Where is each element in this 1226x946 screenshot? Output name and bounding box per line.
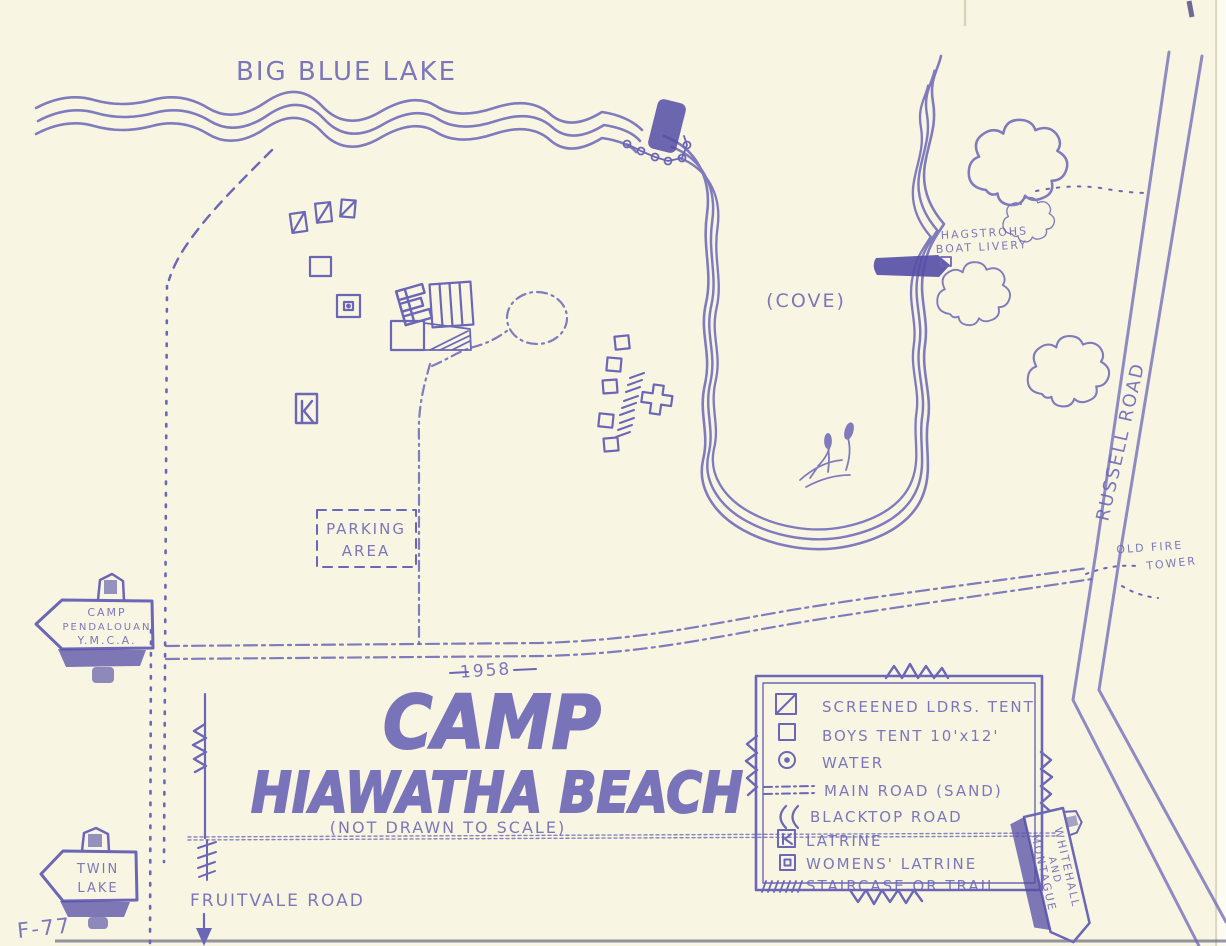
sign-post [92, 667, 114, 683]
legend-label: LATRINE [806, 832, 883, 850]
boat-livery-label: HAGSTROHS BOAT LIVERY [935, 224, 1028, 256]
sign-tower-fill [88, 834, 102, 847]
fruitvale-road-label: FRUITVALE ROAD [190, 891, 365, 911]
pendalouan-line1: CAMP [87, 606, 126, 619]
title-line2: HIAWATHA BEACH [251, 761, 743, 826]
title-line1: CAMP [383, 680, 601, 766]
cove-label: (COVE) [766, 290, 846, 312]
legend-label: WOMENS' LATRINE [806, 855, 977, 873]
sign-base [60, 901, 130, 917]
corner-ink-mark [1189, 1, 1192, 17]
title-note: (NOT DRAWN TO SCALE) [330, 818, 566, 837]
legend-label: STAIRCASE OR TRAIL [806, 877, 997, 895]
legend-label: BLACKTOP ROAD [810, 808, 963, 826]
parking-label-line1: PARKING [326, 520, 406, 538]
twin-lake-line1: TWIN [76, 862, 119, 877]
year-dash-right [514, 669, 536, 670]
twin-lake-line2: LAKE [77, 881, 118, 896]
legend-label: MAIN ROAD (SAND) [824, 782, 1003, 800]
sign-base [58, 649, 146, 667]
sign-tower-fill [104, 580, 117, 594]
sign-post [88, 917, 108, 929]
legend-label: SCREENED LDRS. TENT [822, 698, 1035, 716]
scanned-camp-map: BIG BLUE LAKE (COVE) HAGSTROHS BOAT LIVE… [0, 0, 1226, 946]
parking-label-line2: AREA [342, 542, 390, 560]
scan-edge-strip [1218, 0, 1226, 946]
boat-livery-dock [874, 255, 950, 277]
map-canvas: BIG BLUE LAKE (COVE) HAGSTROHS BOAT LIVE… [0, 0, 1226, 946]
legend-label: BOYS TENT 10'x12' [822, 727, 1000, 745]
lake-name-label: BIG BLUE LAKE [236, 57, 457, 87]
pendalouan-line3: Y.M.C.A. [77, 634, 137, 647]
legend-label: WATER [822, 754, 884, 772]
pendalouan-line2: PENDALOUAN [63, 622, 152, 633]
